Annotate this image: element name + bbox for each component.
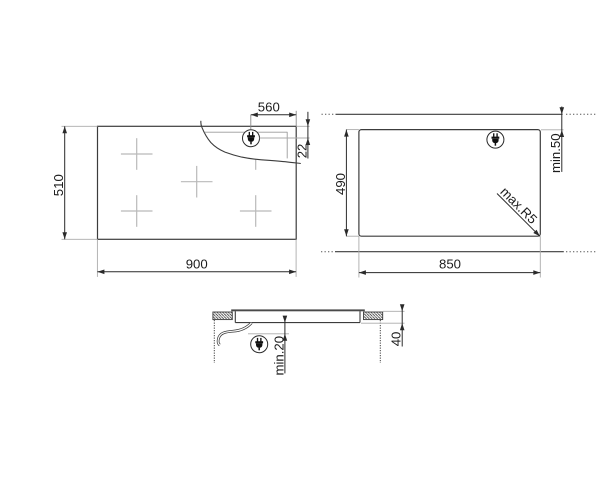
svg-text:40: 40 — [389, 332, 404, 347]
svg-text:510: 510 — [51, 174, 66, 196]
svg-text:900: 900 — [186, 257, 208, 272]
svg-text:min.20: min.20 — [271, 336, 286, 376]
svg-text:560: 560 — [258, 99, 280, 114]
svg-text:22: 22 — [294, 144, 309, 159]
svg-text:490: 490 — [333, 173, 348, 195]
svg-text:min.50: min.50 — [548, 133, 563, 173]
svg-text:850: 850 — [439, 256, 461, 271]
svg-text:max.R5: max.R5 — [497, 184, 540, 227]
